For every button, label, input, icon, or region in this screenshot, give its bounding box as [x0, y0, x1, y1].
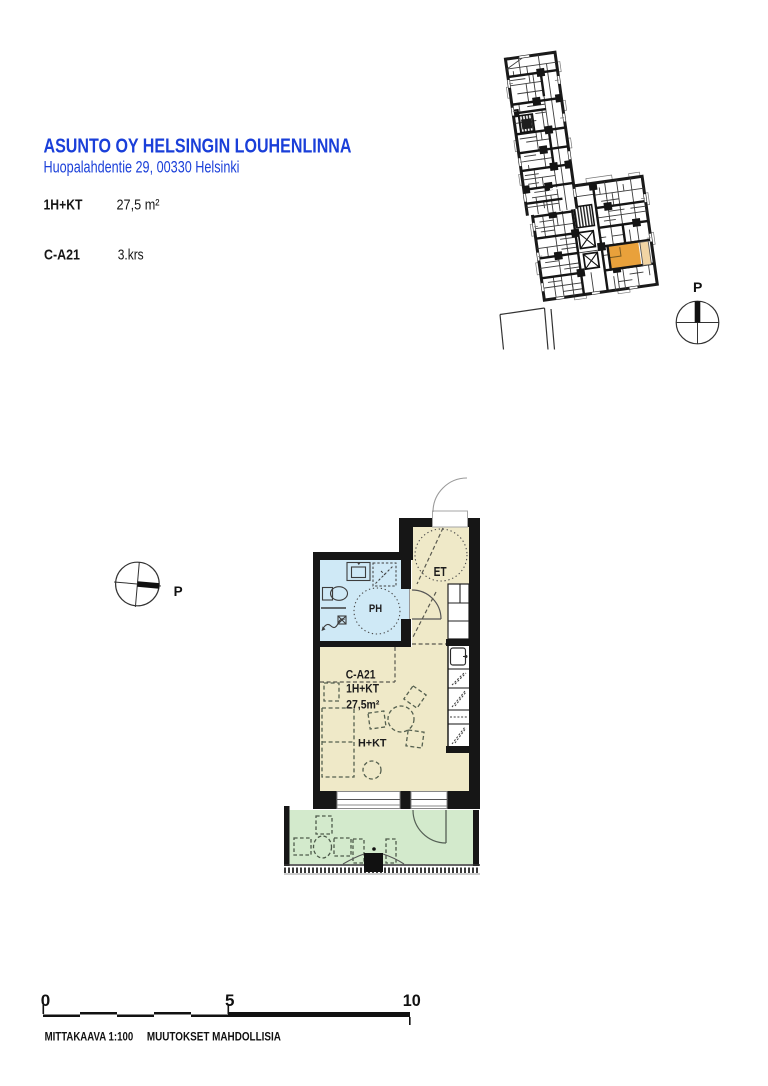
svg-text:27,5m²: 27,5m²: [346, 698, 379, 712]
svg-text:C-A21: C-A21: [346, 667, 376, 681]
svg-text:10: 10: [403, 991, 421, 1010]
svg-text:27,5 m²: 27,5 m²: [117, 197, 160, 214]
svg-text:0: 0: [41, 991, 50, 1010]
svg-text:1H+KT: 1H+KT: [44, 197, 83, 214]
svg-text:PH: PH: [369, 603, 382, 615]
svg-text:MITTAKAAVA 1:100: MITTAKAAVA 1:100: [45, 1032, 134, 1044]
svg-text:C-A21: C-A21: [44, 247, 80, 264]
svg-text:1H+KT: 1H+KT: [346, 682, 379, 696]
svg-text:5: 5: [225, 991, 234, 1010]
svg-text:P: P: [693, 279, 702, 295]
svg-text:ET: ET: [434, 565, 447, 579]
svg-text:MUUTOKSET MAHDOLLISIA: MUUTOKSET MAHDOLLISIA: [147, 1032, 281, 1044]
svg-text:P: P: [174, 584, 183, 599]
svg-text:Huopalahdentie 29, 00330 Helsi: Huopalahdentie 29, 00330 Helsinki: [44, 158, 240, 177]
svg-text:3.krs: 3.krs: [118, 247, 144, 264]
svg-text:ASUNTO OY HELSINGIN LOUHENLINN: ASUNTO OY HELSINGIN LOUHENLINNA: [44, 136, 352, 158]
svg-text:H+KT: H+KT: [358, 738, 387, 750]
